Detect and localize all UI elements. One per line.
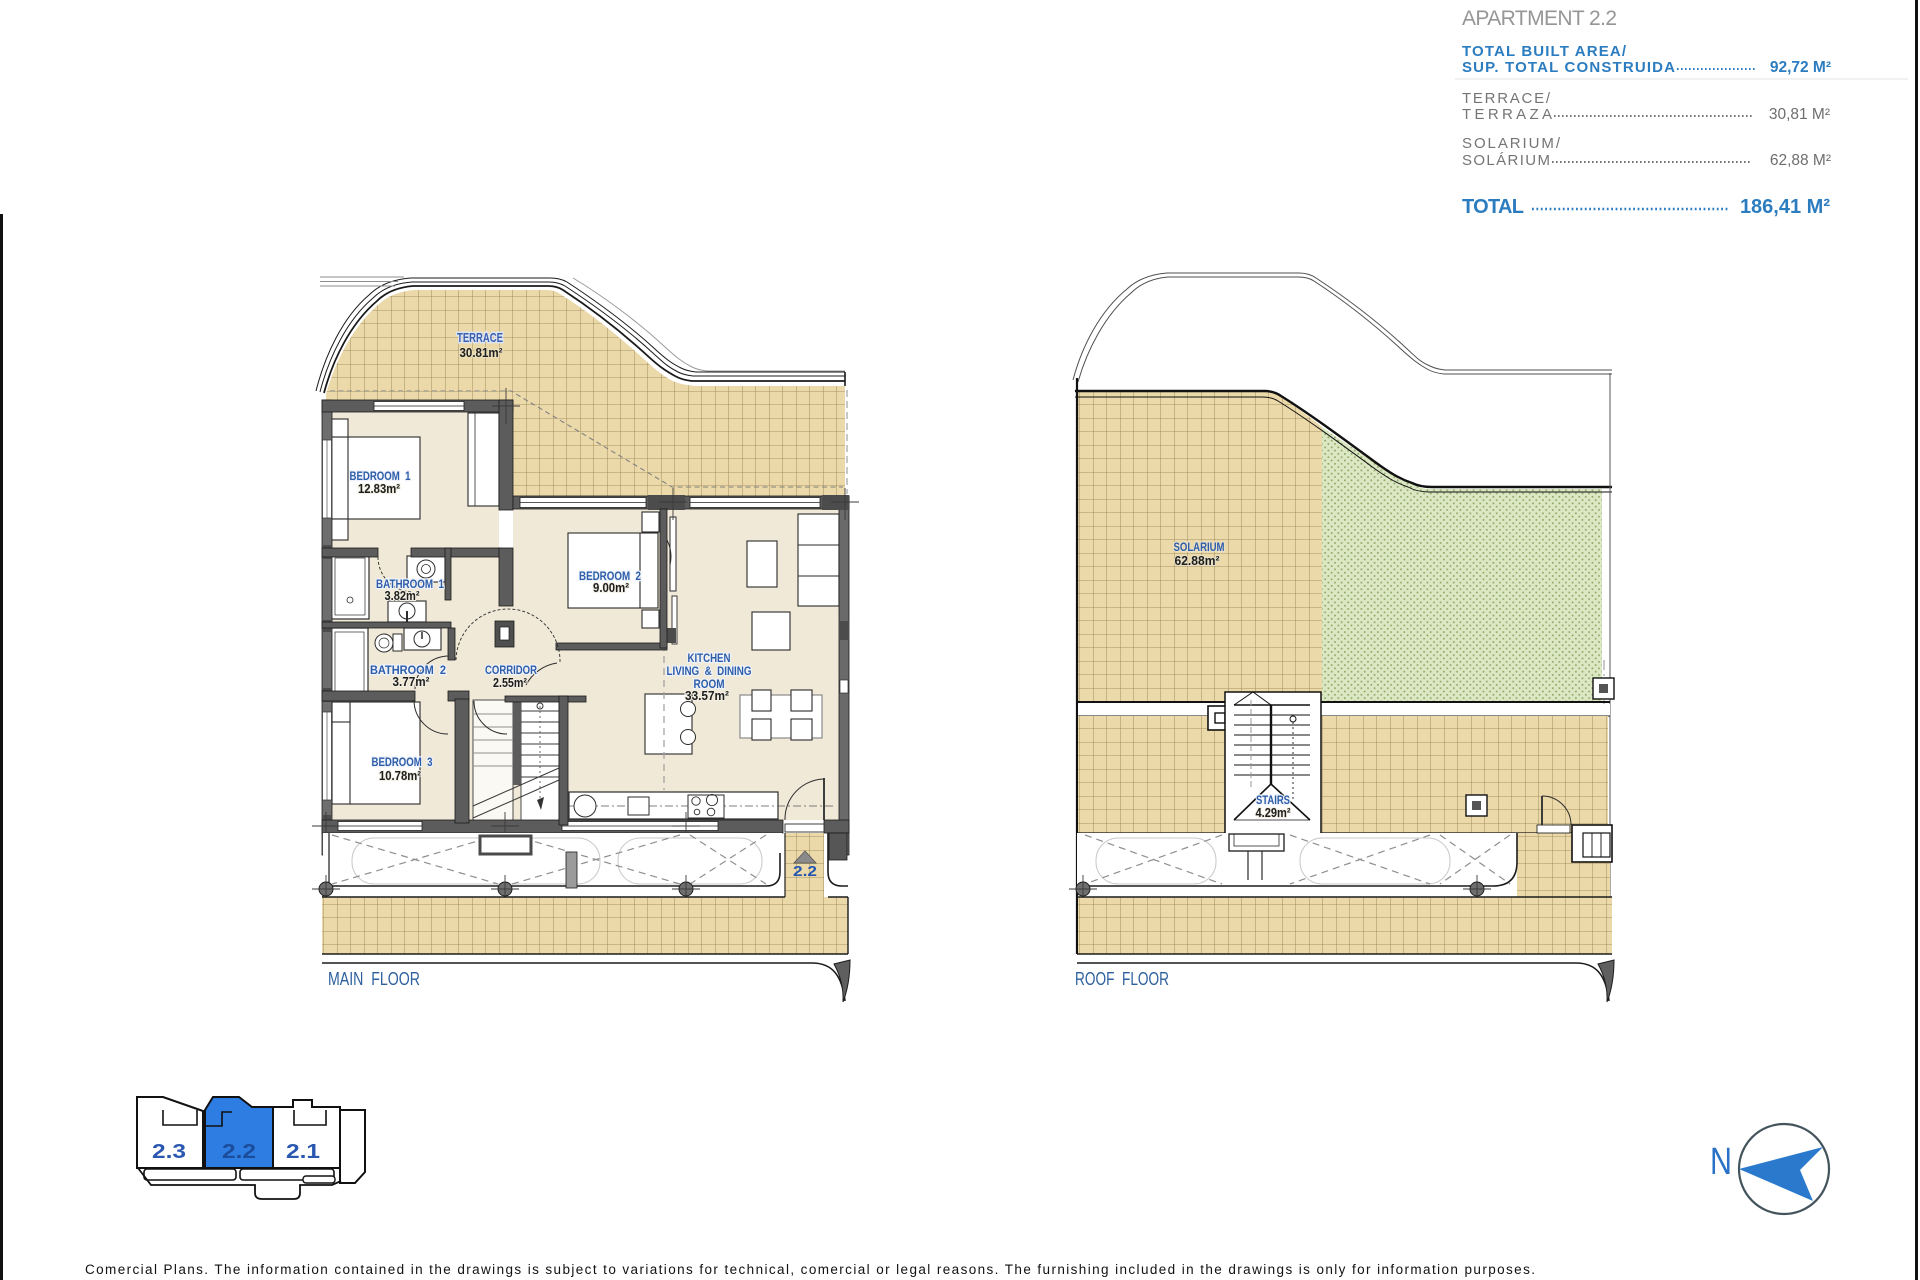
svg-text:9.00m²: 9.00m² bbox=[593, 581, 629, 595]
svg-text:2.2: 2.2 bbox=[793, 863, 817, 880]
svg-text:CORRIDOR: CORRIDOR bbox=[485, 663, 537, 677]
svg-text:SOLARIUM: SOLARIUM bbox=[1174, 540, 1225, 554]
svg-text:KITCHEN: KITCHEN bbox=[688, 651, 731, 665]
svg-text:SUP. TOTAL CONSTRUIDA: SUP. TOTAL CONSTRUIDA bbox=[1462, 59, 1675, 76]
svg-text:N: N bbox=[1710, 1141, 1732, 1183]
svg-text:92,72 M²: 92,72 M² bbox=[1770, 59, 1831, 76]
svg-text:TOTAL BUILT AREA/: TOTAL BUILT AREA/ bbox=[1462, 43, 1627, 60]
svg-text:186,41 M²: 186,41 M² bbox=[1740, 196, 1830, 218]
svg-text:TERRAZA: TERRAZA bbox=[1462, 106, 1552, 123]
svg-text:2.1: 2.1 bbox=[286, 1141, 320, 1163]
svg-text:3.77m²: 3.77m² bbox=[393, 675, 430, 689]
svg-text:SOLARIUM/: SOLARIUM/ bbox=[1462, 135, 1561, 152]
svg-text:10.78m²: 10.78m² bbox=[379, 769, 421, 783]
svg-text:3.82m²: 3.82m² bbox=[385, 589, 420, 603]
svg-text:4.29m²: 4.29m² bbox=[1256, 806, 1291, 820]
svg-text:2.3: 2.3 bbox=[152, 1141, 186, 1163]
svg-text:STAIRS: STAIRS bbox=[1256, 793, 1290, 807]
svg-text:12.83m²: 12.83m² bbox=[358, 482, 400, 496]
svg-text:62.88m²: 62.88m² bbox=[1175, 554, 1220, 568]
svg-text:SOLÁRIUM: SOLÁRIUM bbox=[1462, 152, 1550, 169]
svg-text:30.81m²: 30.81m² bbox=[460, 345, 504, 360]
svg-text:62,88 M²: 62,88 M² bbox=[1770, 152, 1831, 169]
svg-text:ROOF FLOOR: ROOF FLOOR bbox=[1075, 969, 1169, 989]
svg-text:APARTMENT 2.2: APARTMENT 2.2 bbox=[1462, 7, 1617, 30]
svg-text:2.2: 2.2 bbox=[222, 1141, 256, 1163]
svg-text:TERRACE/: TERRACE/ bbox=[1462, 90, 1551, 107]
svg-text:2.55m²: 2.55m² bbox=[493, 676, 527, 690]
svg-text:33.57m²: 33.57m² bbox=[685, 689, 729, 703]
svg-text:30,81 M²: 30,81 M² bbox=[1769, 106, 1830, 123]
svg-text:TOTAL: TOTAL bbox=[1462, 196, 1524, 218]
svg-text:Comercial Plans. The informati: Comercial Plans. The information contain… bbox=[85, 1262, 1535, 1277]
svg-text:BEDROOM 3: BEDROOM 3 bbox=[372, 755, 433, 769]
svg-text:MAIN FLOOR: MAIN FLOOR bbox=[328, 969, 420, 989]
svg-text:LIVING & DINING: LIVING & DINING bbox=[667, 664, 752, 678]
svg-text:TERRACE: TERRACE bbox=[457, 331, 503, 345]
svg-text:BEDROOM 1: BEDROOM 1 bbox=[350, 469, 411, 483]
